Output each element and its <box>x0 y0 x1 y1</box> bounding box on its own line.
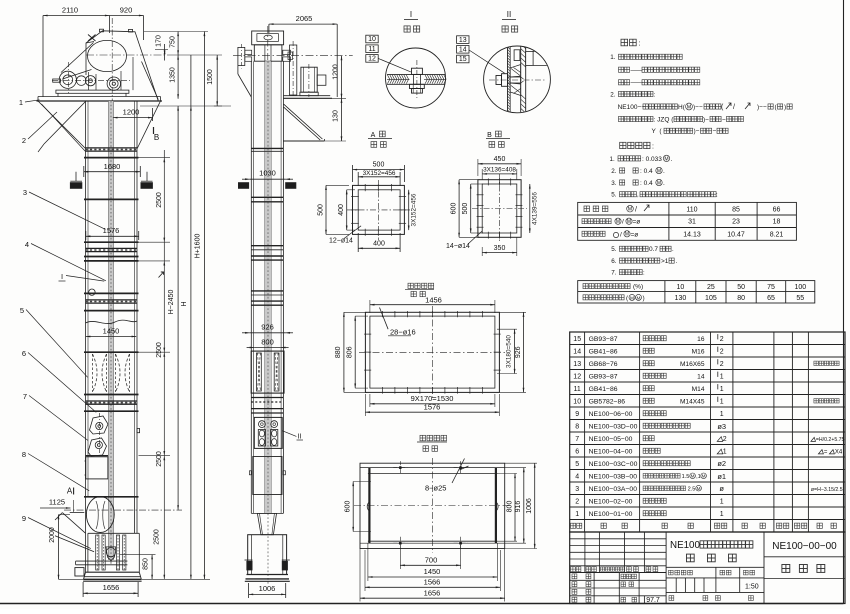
svg-text:)−: )− <box>703 116 709 123</box>
svg-text:10.47: 10.47 <box>727 231 745 238</box>
svg-text:I: I <box>61 272 63 281</box>
svg-text:1456: 1456 <box>425 295 442 304</box>
svg-text:4: 4 <box>575 473 579 480</box>
svg-text:500: 500 <box>462 203 469 215</box>
svg-text:2: 2 <box>22 136 26 145</box>
svg-text:2500: 2500 <box>156 342 163 358</box>
svg-text:2065: 2065 <box>296 14 313 23</box>
svg-text:H−2450: H−2450 <box>168 290 175 315</box>
svg-text:14.13: 14.13 <box>683 231 701 238</box>
svg-text:3: 3 <box>575 486 579 493</box>
svg-text:(%): (%) <box>633 284 643 291</box>
svg-text:GB5782−86: GB5782−86 <box>589 398 626 405</box>
svg-text:15: 15 <box>573 336 581 343</box>
svg-text:97.7: 97.7 <box>646 597 660 604</box>
svg-text:/: / <box>733 104 735 111</box>
svg-text:M: M <box>657 181 661 187</box>
svg-text:9: 9 <box>575 411 579 418</box>
svg-text:16: 16 <box>697 336 705 343</box>
svg-text:=: = <box>824 449 828 455</box>
svg-text:110: 110 <box>686 206 697 213</box>
svg-text:NE100−05−00: NE100−05−00 <box>589 436 633 443</box>
svg-text:1656: 1656 <box>424 588 441 597</box>
svg-text:1450: 1450 <box>103 327 120 336</box>
svg-text:7: 7 <box>575 436 579 443</box>
svg-text:3X152=456: 3X152=456 <box>411 193 418 226</box>
svg-text:750: 750 <box>170 36 177 48</box>
svg-text:2.: 2. <box>611 168 617 175</box>
svg-text:920: 920 <box>120 6 133 15</box>
svg-text:450: 450 <box>494 156 506 163</box>
svg-text:H+1600: H+1600 <box>194 234 201 259</box>
svg-text:1125: 1125 <box>49 498 65 507</box>
svg-text:)−: )− <box>694 128 700 135</box>
svg-text:2: 2 <box>720 361 724 368</box>
svg-text:.: . <box>671 156 673 163</box>
svg-text:2500: 2500 <box>156 451 163 467</box>
svg-text:M: M <box>630 295 634 301</box>
svg-text:2.5: 2.5 <box>688 487 696 493</box>
svg-text:14: 14 <box>697 373 705 380</box>
svg-text:18: 18 <box>773 219 781 226</box>
svg-text:NE100−01−00: NE100−01−00 <box>589 511 633 518</box>
svg-text:: 0.4: : 0.4 <box>640 180 653 187</box>
svg-text::: : <box>639 39 641 48</box>
svg-text:23: 23 <box>732 219 740 226</box>
svg-text:>1: >1 <box>661 258 669 265</box>
svg-text:7: 7 <box>23 392 27 401</box>
svg-text:806: 806 <box>347 346 354 358</box>
svg-text:=ø: =ø <box>631 231 639 238</box>
svg-text:ø2: ø2 <box>717 459 726 468</box>
svg-text:1: 1 <box>720 511 724 518</box>
svg-text:10: 10 <box>573 398 581 405</box>
svg-text:=H/0.2+5.75: =H/0.2+5.75 <box>816 437 845 443</box>
svg-text:3X152=456: 3X152=456 <box>363 170 396 177</box>
svg-text:105: 105 <box>705 295 717 302</box>
svg-text:/: / <box>622 219 624 226</box>
svg-text:GB93−87: GB93−87 <box>589 373 618 380</box>
svg-text:ø3: ø3 <box>717 422 726 431</box>
svg-text:M: M <box>616 219 620 225</box>
svg-text:1576: 1576 <box>103 226 120 235</box>
svg-text:B: B <box>154 133 159 142</box>
svg-text:12−ø14: 12−ø14 <box>329 238 353 245</box>
svg-text:2: 2 <box>720 348 724 355</box>
svg-text:10: 10 <box>677 284 685 291</box>
svg-text:50: 50 <box>737 284 745 291</box>
svg-text:——: —— <box>631 81 643 87</box>
svg-text:3.: 3. <box>611 180 617 187</box>
svg-text:1: 1 <box>19 98 23 107</box>
svg-text:3X136=408: 3X136=408 <box>483 167 516 174</box>
svg-text:66: 66 <box>773 206 781 213</box>
svg-text:2: 2 <box>720 336 724 343</box>
svg-text:916: 916 <box>515 501 522 513</box>
svg-text:)−−: )−− <box>757 104 767 111</box>
svg-text:1.: 1. <box>610 54 616 61</box>
svg-text:B: B <box>487 132 492 139</box>
svg-text:5.: 5. <box>611 192 617 199</box>
svg-text:15: 15 <box>459 56 467 63</box>
svg-text:ø1: ø1 <box>717 472 726 481</box>
svg-text:GB93−87: GB93−87 <box>589 336 618 343</box>
svg-text:X4: X4 <box>835 449 843 455</box>
svg-text:1: 1 <box>720 386 724 393</box>
svg-text:2500: 2500 <box>156 192 163 208</box>
svg-text:800: 800 <box>261 337 274 346</box>
svg-text:12: 12 <box>368 56 376 63</box>
svg-text:7.: 7. <box>611 270 617 277</box>
svg-text:NE100−−: NE100−− <box>618 104 646 111</box>
svg-text:1: 1 <box>720 373 724 380</box>
svg-text:1:50: 1:50 <box>745 583 759 590</box>
svg-text:M16X65: M16X65 <box>680 361 705 368</box>
svg-text:12: 12 <box>573 373 581 380</box>
svg-text:M: M <box>657 169 661 175</box>
svg-text:850: 850 <box>143 558 150 570</box>
svg-text:600: 600 <box>345 501 352 513</box>
svg-text:H: H <box>181 301 188 306</box>
svg-text:I: I <box>410 10 412 19</box>
svg-text:: 0.4: : 0.4 <box>640 168 653 175</box>
svg-text:M: M <box>628 207 632 213</box>
svg-text:6: 6 <box>575 448 579 455</box>
svg-text:13: 13 <box>573 361 581 368</box>
svg-text:NE100−00−00: NE100−00−00 <box>772 541 837 552</box>
svg-text:M: M <box>627 219 631 225</box>
svg-text:25: 25 <box>707 284 715 291</box>
svg-text:700: 700 <box>425 555 438 564</box>
svg-text:14−ø14: 14−ø14 <box>446 243 470 250</box>
svg-text:GB68−76: GB68−76 <box>589 361 618 368</box>
svg-text:80: 80 <box>737 295 745 302</box>
svg-text:4X139=556: 4X139=556 <box>532 192 539 225</box>
svg-text:800: 800 <box>506 501 513 513</box>
svg-text:8.21: 8.21 <box>770 231 784 238</box>
svg-text:M16: M16 <box>692 348 705 355</box>
svg-text:500: 500 <box>318 204 325 216</box>
svg-text:1: 1 <box>723 448 727 455</box>
svg-text:A: A <box>67 487 73 496</box>
svg-text:2500: 2500 <box>154 529 161 545</box>
svg-text:130: 130 <box>675 295 687 302</box>
svg-text:,1: ,1 <box>696 474 701 480</box>
svg-text:M14X45: M14X45 <box>680 398 705 405</box>
svg-text:/: / <box>635 206 637 213</box>
svg-text:1: 1 <box>575 511 579 518</box>
svg-text:ø: ø <box>719 484 724 493</box>
svg-text:A: A <box>371 132 376 139</box>
svg-text:2: 2 <box>575 498 579 505</box>
svg-text:M14: M14 <box>692 386 705 393</box>
svg-text:2: 2 <box>723 436 727 443</box>
svg-text:1: 1 <box>720 398 724 405</box>
svg-text:500: 500 <box>373 162 385 169</box>
svg-text:0.7: 0.7 <box>649 246 658 253</box>
svg-text:55: 55 <box>796 295 804 302</box>
svg-text:4: 4 <box>25 240 29 249</box>
svg-text:1500: 1500 <box>207 69 214 85</box>
svg-text:GB41−86: GB41−86 <box>589 386 618 393</box>
svg-text:1200: 1200 <box>333 64 340 80</box>
svg-text:.: . <box>663 180 665 187</box>
svg-text:): ) <box>643 295 645 302</box>
svg-text:1006: 1006 <box>259 584 276 593</box>
svg-text:600: 600 <box>451 203 458 215</box>
svg-text:1566: 1566 <box>424 578 441 587</box>
svg-text:100: 100 <box>794 284 806 291</box>
svg-text:II: II <box>507 10 511 19</box>
svg-text:31: 31 <box>688 219 696 226</box>
svg-text:−: − <box>722 116 726 123</box>
svg-text:350: 350 <box>494 245 506 252</box>
svg-text:14: 14 <box>459 47 467 54</box>
svg-text:1: 1 <box>720 498 724 505</box>
svg-text:11: 11 <box>574 386 581 393</box>
svg-text:14: 14 <box>573 348 581 355</box>
svg-text:)−−: )−− <box>693 104 703 111</box>
svg-text:6: 6 <box>22 349 26 358</box>
svg-text:M: M <box>637 295 641 301</box>
svg-text:NE100−02−00: NE100−02−00 <box>589 498 633 505</box>
svg-text:10: 10 <box>368 36 376 43</box>
svg-text:——: —— <box>631 68 643 74</box>
svg-text:13: 13 <box>459 37 467 44</box>
svg-text:M: M <box>691 474 695 479</box>
svg-text:M: M <box>625 232 629 238</box>
svg-text:GB41−86: GB41−86 <box>589 348 618 355</box>
svg-text:2000: 2000 <box>49 527 56 543</box>
svg-text:85: 85 <box>732 206 740 213</box>
svg-text:926: 926 <box>515 346 522 358</box>
svg-text:880: 880 <box>335 346 342 358</box>
svg-text:: 0.033: : 0.033 <box>642 156 662 163</box>
svg-text:8: 8 <box>575 423 579 430</box>
svg-text:400: 400 <box>373 241 385 248</box>
svg-text:9: 9 <box>22 514 26 523</box>
svg-text:130: 130 <box>333 110 340 122</box>
svg-text:65: 65 <box>767 295 775 302</box>
svg-text:1006: 1006 <box>526 498 533 514</box>
svg-text:170: 170 <box>156 35 163 47</box>
svg-text:H(: H( <box>678 104 686 111</box>
svg-text:3X180=540: 3X180=540 <box>506 335 513 368</box>
svg-text:11: 11 <box>368 46 375 53</box>
svg-text:5.: 5. <box>611 246 617 253</box>
svg-text:1576: 1576 <box>424 402 441 411</box>
svg-text:1: 1 <box>720 411 724 418</box>
svg-text:M: M <box>687 105 692 111</box>
svg-text:NE100−03A−00: NE100−03A−00 <box>589 486 638 493</box>
svg-text:: JZQ (: : JZQ ( <box>654 116 675 123</box>
svg-text:1450: 1450 <box>424 567 441 576</box>
svg-text:=ø: =ø <box>633 219 641 226</box>
svg-text:400: 400 <box>338 204 345 216</box>
svg-text:8: 8 <box>22 450 26 459</box>
svg-text::: : <box>652 144 654 151</box>
svg-text:M: M <box>664 156 668 162</box>
svg-text:926: 926 <box>261 323 274 332</box>
svg-text:NE100−03D−00: NE100−03D−00 <box>589 423 638 430</box>
svg-text:8−ø25: 8−ø25 <box>425 484 446 493</box>
svg-text:6.: 6. <box>611 258 617 265</box>
svg-text:): ) <box>784 104 786 111</box>
svg-text:2110: 2110 <box>62 6 78 15</box>
svg-text:1656: 1656 <box>103 583 120 592</box>
svg-text:1.: 1. <box>610 156 616 163</box>
svg-text:II: II <box>298 434 302 441</box>
svg-text:NE100−06−00: NE100−06−00 <box>589 411 633 418</box>
svg-text:NE100: NE100 <box>670 540 701 551</box>
svg-text:5: 5 <box>575 461 579 468</box>
svg-text:−: − <box>713 128 717 135</box>
svg-text:M: M <box>702 474 706 479</box>
svg-text:NE100−03C−00: NE100−03C−00 <box>589 461 638 468</box>
svg-text:1350: 1350 <box>170 67 177 83</box>
svg-text:NE100−03B−00: NE100−03B−00 <box>589 473 638 480</box>
svg-text:M: M <box>697 486 701 491</box>
svg-text:5: 5 <box>20 306 24 315</box>
svg-text:28−ø16: 28−ø16 <box>390 328 416 337</box>
svg-text:Y (: Y ( <box>652 128 663 135</box>
svg-text:1680: 1680 <box>104 162 121 171</box>
svg-text:/: / <box>620 231 622 238</box>
svg-text:1.5: 1.5 <box>682 474 690 480</box>
svg-text:1200: 1200 <box>123 108 140 117</box>
svg-text:1030: 1030 <box>259 169 276 178</box>
svg-text:.: . <box>663 168 665 175</box>
svg-text:2.: 2. <box>610 91 616 98</box>
svg-text:ø=H−3.15/2.5: ø=H−3.15/2.5 <box>811 487 843 493</box>
svg-text:NE100−04−00: NE100−04−00 <box>589 448 633 455</box>
svg-text:3: 3 <box>23 188 27 197</box>
svg-text:75: 75 <box>767 284 775 291</box>
